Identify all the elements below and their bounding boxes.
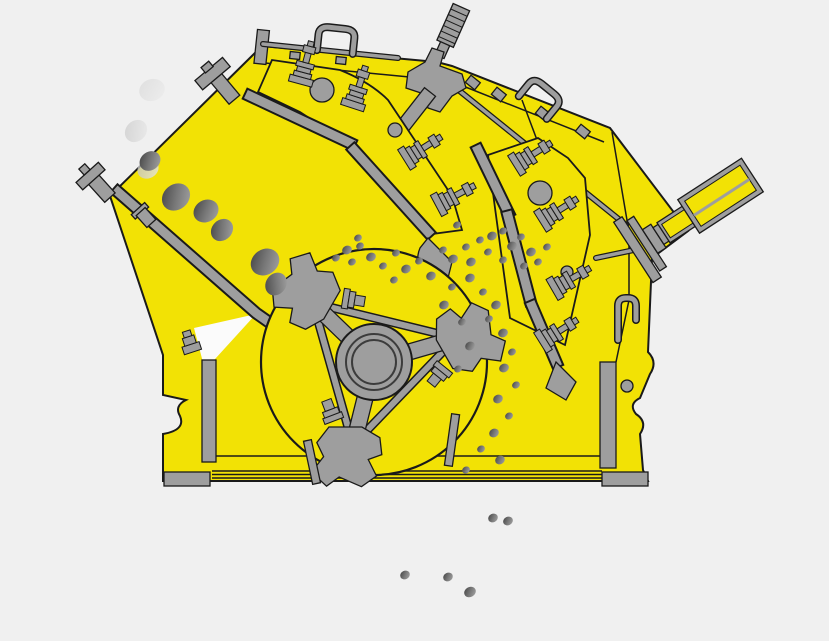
rock <box>487 512 500 524</box>
left-wall-liner <box>202 360 216 462</box>
left-foot <box>164 472 210 486</box>
rotor-hub <box>336 324 412 400</box>
rail-tab <box>336 56 347 64</box>
rock <box>120 115 151 146</box>
rock <box>399 569 412 581</box>
wall-bolt-hole <box>621 380 633 392</box>
apron1-small-hole <box>388 123 402 137</box>
impact-crusher-diagram <box>0 0 829 641</box>
rocks-discharged <box>399 512 515 599</box>
right-wall-liner <box>600 362 616 468</box>
apron1-pivot-hole <box>310 78 334 102</box>
rock <box>442 571 455 583</box>
rock <box>462 585 477 599</box>
rock <box>136 75 168 104</box>
rock <box>502 515 515 527</box>
apron2-pivot-hole <box>528 181 552 205</box>
right-foot <box>602 472 648 486</box>
rail-tab <box>290 51 301 59</box>
diagram-canvas <box>0 0 829 641</box>
